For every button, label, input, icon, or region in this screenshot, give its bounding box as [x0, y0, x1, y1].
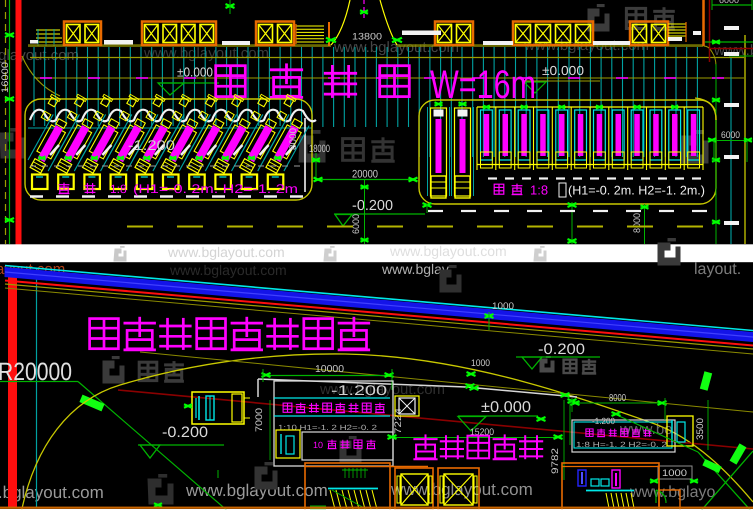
svg-text:1000: 1000	[492, 301, 514, 312]
svg-text:8000: 8000	[288, 128, 299, 150]
svg-text:www.bglay: www.bglay	[381, 261, 449, 277]
svg-text:13800: 13800	[352, 32, 382, 43]
svg-text:9782: 9782	[550, 448, 561, 474]
svg-text:layout.: layout.	[694, 261, 741, 278]
svg-text:10000: 10000	[315, 364, 344, 375]
svg-text:www.bglayout.com: www.bglayout.com	[169, 262, 287, 278]
svg-text:8000: 8000	[632, 213, 643, 233]
svg-text:1:10 H1=-1. 2 H2=-0. 2: 1:10 H1=-1. 2 H2=-0. 2	[278, 423, 377, 432]
svg-text:1000: 1000	[471, 358, 490, 369]
svg-text:8000: 8000	[609, 393, 626, 404]
svg-text:-1.200: -1.200	[128, 137, 175, 153]
svg-text:1:8 H=-1. 2 H2=-0. 2: 1:8 H=-1. 2 H2=-0. 2	[576, 440, 667, 449]
svg-text:www.bglayout.com: www.bglayout.com	[0, 47, 79, 64]
svg-text:±0.000: ±0.000	[542, 63, 584, 78]
svg-text:-1.200: -1.200	[331, 382, 387, 398]
svg-text:www.bglayo: www.bglayo	[629, 484, 715, 501]
svg-text:www.bglayout.com: www.bglayout.com	[167, 244, 285, 260]
svg-text:10: 10	[313, 440, 323, 450]
svg-text:-1.200: -1.200	[592, 416, 615, 426]
svg-text:±0.000: ±0.000	[481, 399, 531, 416]
svg-text:www.bglayout.com: www.bglayout.com	[389, 243, 507, 259]
svg-text:(H1=-0. 2m. H2=-1. 2m.): (H1=-0. 2m. H2=-1. 2m.)	[568, 184, 705, 198]
svg-text:6000: 6000	[351, 214, 362, 234]
svg-text:6000: 6000	[719, 0, 739, 5]
svg-text:20000: 20000	[352, 169, 378, 181]
svg-text:7000: 7000	[254, 408, 265, 432]
svg-text:±0.000: ±0.000	[177, 65, 213, 80]
svg-text:-0.200: -0.200	[162, 424, 208, 441]
svg-text:16000: 16000	[0, 62, 11, 93]
svg-text:(H1=-0. 2m. H2=-1. 2m: (H1=-0. 2m. H2=-1. 2m	[133, 182, 298, 196]
svg-text:3500: 3500	[695, 418, 706, 440]
svg-text:-0.200: -0.200	[352, 198, 393, 214]
svg-text:6000: 6000	[721, 130, 740, 141]
svg-text:18000: 18000	[309, 143, 330, 155]
svg-text:1:8: 1:8	[530, 183, 548, 198]
svg-text:-0.200: -0.200	[538, 341, 585, 358]
svg-text:1:8: 1:8	[110, 182, 127, 196]
svg-text:1000: 1000	[662, 468, 687, 479]
svg-text:www.bglayout.com: www.bglayout.com	[390, 480, 533, 499]
